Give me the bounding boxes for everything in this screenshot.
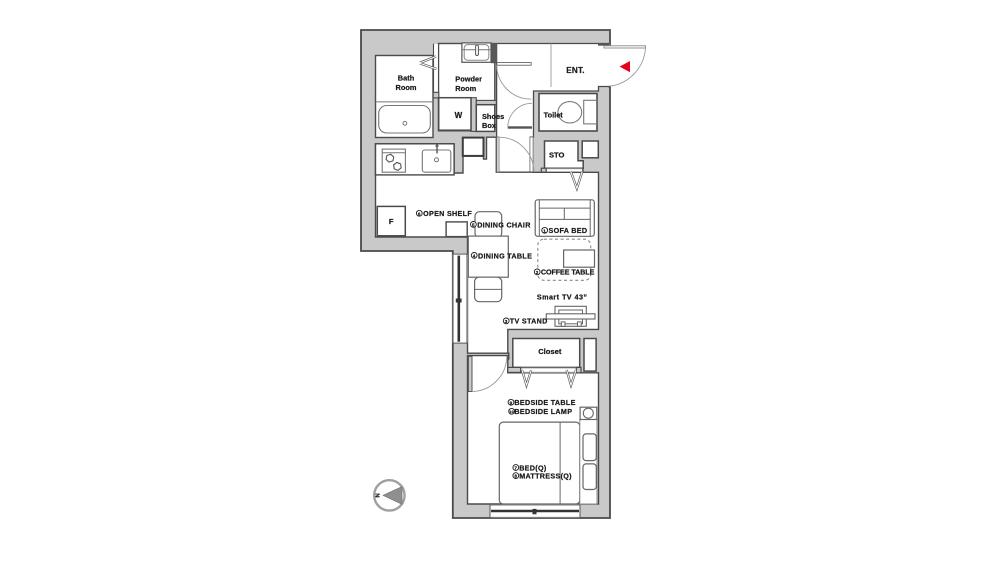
svg-text:N: N (376, 493, 382, 497)
svg-text:BEDSIDE LAMP: BEDSIDE LAMP (514, 407, 572, 416)
svg-text:W: W (455, 111, 463, 120)
svg-text:Room: Room (455, 84, 476, 93)
svg-text:Powder: Powder (455, 75, 482, 84)
svg-text:SOFA BED: SOFA BED (549, 226, 588, 235)
svg-text:ENT.: ENT. (566, 66, 585, 75)
svg-text:DINING TABLE: DINING TABLE (478, 251, 532, 260)
svg-text:2: 2 (536, 270, 539, 275)
svg-text:OPEN SHELF: OPEN SHELF (423, 209, 472, 218)
svg-text:F: F (389, 217, 394, 226)
svg-text:Room: Room (396, 83, 417, 92)
svg-text:7: 7 (514, 466, 517, 471)
svg-text:MATTRESS(Q): MATTRESS(Q) (519, 471, 572, 480)
svg-text:TV STAND: TV STAND (510, 316, 548, 325)
svg-text:DINING CHAIR: DINING CHAIR (477, 220, 531, 229)
svg-text:Shoes: Shoes (482, 112, 504, 121)
svg-text:5: 5 (472, 222, 475, 227)
svg-text:1: 1 (543, 228, 546, 233)
svg-text:BEDSIDE TABLE: BEDSIDE TABLE (514, 398, 575, 407)
svg-text:6: 6 (418, 211, 421, 216)
svg-text:10: 10 (509, 410, 514, 414)
svg-text:9: 9 (510, 400, 513, 405)
svg-text:Closet: Closet (538, 347, 562, 356)
svg-text:3: 3 (505, 319, 508, 324)
svg-text:Bath: Bath (398, 74, 415, 83)
svg-text:COFFEE TABLE: COFFEE TABLE (541, 268, 595, 277)
svg-text:Toilet: Toilet (544, 111, 564, 120)
svg-text:4: 4 (473, 253, 476, 258)
svg-text:STO: STO (549, 150, 565, 159)
svg-text:Box: Box (482, 121, 497, 130)
svg-text:8: 8 (514, 474, 517, 479)
svg-text:Smart TV 43”: Smart TV 43” (537, 292, 588, 301)
